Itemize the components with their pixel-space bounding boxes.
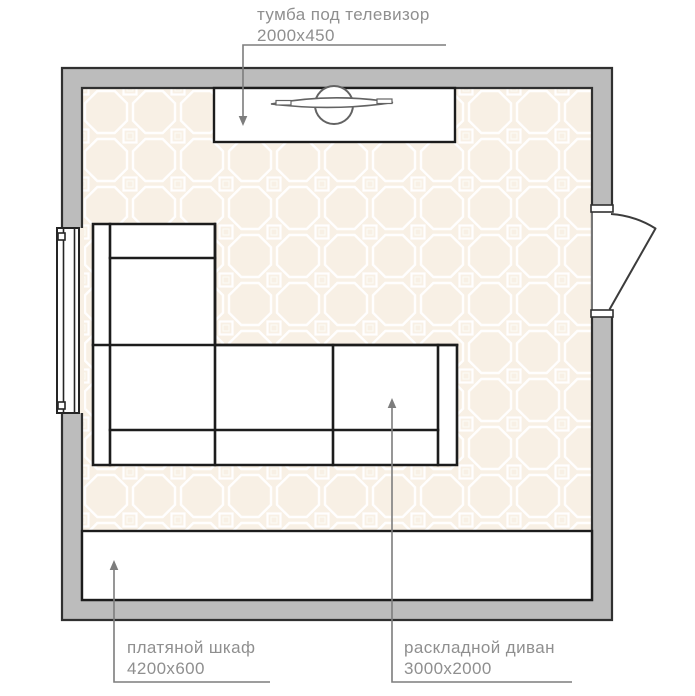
sofa-label: раскладной диван 3000x2000 [404, 637, 555, 679]
tv-screen-cap-right [377, 99, 392, 104]
door-jamb-bottom [591, 310, 613, 317]
sofa-label-name: раскладной диван [404, 637, 555, 658]
tv-screen-cap-left [276, 101, 291, 106]
floor-plan-canvas: тумба под телевизор 2000x450 платяной шк… [0, 0, 695, 696]
wardrobe-label-size: 4200x600 [127, 658, 255, 679]
tv-stand-group [214, 86, 455, 142]
window-end-block-bottom [58, 402, 65, 409]
wardrobe-label: платяной шкаф 4200x600 [127, 637, 255, 679]
floor-plan [0, 0, 695, 696]
tv-stand-label-size: 2000x450 [257, 25, 430, 46]
window-end-block-top [58, 233, 65, 240]
tv-stand-label-name: тумба под телевизор [257, 4, 430, 25]
wardrobe-label-name: платяной шкаф [127, 637, 255, 658]
sofa-label-size: 3000x2000 [404, 658, 555, 679]
door-swing-arc [610, 214, 656, 310]
door-jamb-top [591, 205, 613, 212]
window-frame [57, 228, 79, 413]
wardrobe [82, 531, 592, 600]
door [591, 205, 656, 317]
tv-stand-label: тумба под телевизор 2000x450 [257, 4, 430, 46]
window [55, 228, 84, 413]
